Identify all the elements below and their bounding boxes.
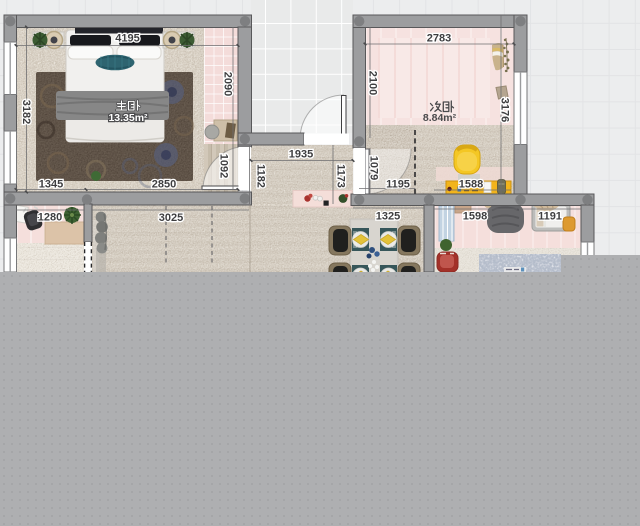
svg-text:8.84m²: 8.84m² (423, 112, 457, 124)
svg-text:1191: 1191 (538, 211, 562, 223)
svg-text:1345: 1345 (39, 179, 63, 191)
svg-text:2100: 2100 (367, 71, 379, 95)
svg-text:1588: 1588 (459, 179, 483, 191)
svg-text:4195: 4195 (115, 33, 139, 45)
svg-text:1182: 1182 (255, 164, 267, 188)
svg-text:3025: 3025 (159, 212, 183, 224)
svg-text:2090: 2090 (222, 72, 234, 96)
svg-text:1195: 1195 (386, 179, 410, 191)
svg-text:1173: 1173 (335, 164, 347, 188)
svg-text:1935: 1935 (289, 149, 313, 161)
svg-text:1280: 1280 (38, 212, 62, 224)
svg-text:13.35m²: 13.35m² (108, 112, 148, 124)
svg-text:1325: 1325 (376, 211, 400, 223)
svg-text:1598: 1598 (463, 211, 487, 223)
svg-text:3176: 3176 (499, 98, 511, 122)
svg-text:2850: 2850 (152, 179, 176, 191)
svg-text:1079: 1079 (368, 156, 380, 180)
svg-text:3182: 3182 (20, 100, 32, 124)
svg-text:1092: 1092 (218, 154, 230, 178)
svg-text:2783: 2783 (427, 33, 451, 45)
